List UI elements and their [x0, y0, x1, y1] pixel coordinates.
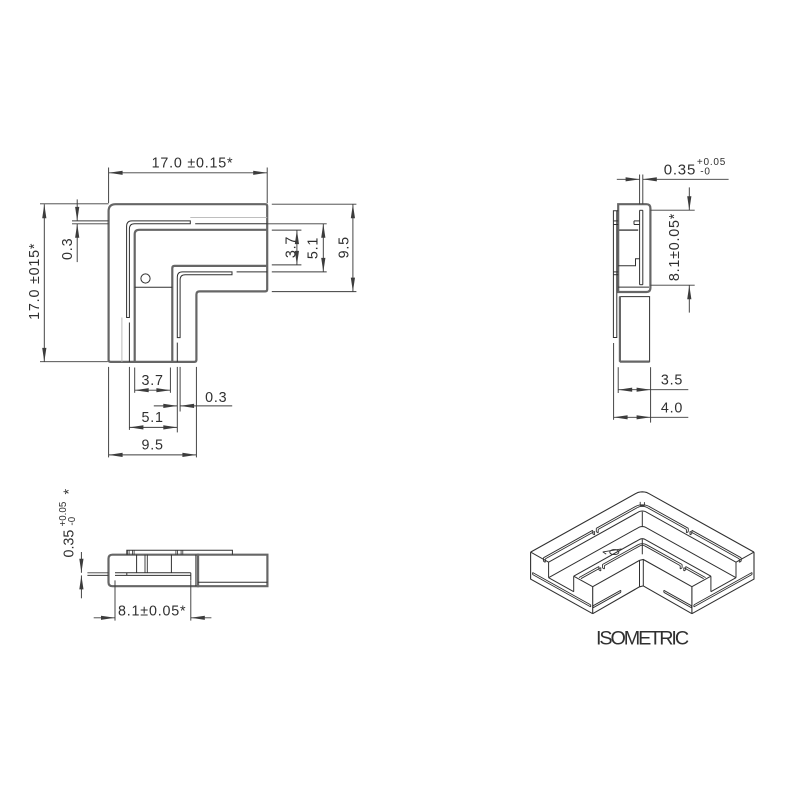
svg-text:*: *	[62, 489, 78, 495]
svg-text:8.1±0.05*: 8.1±0.05*	[118, 603, 186, 619]
svg-text:-0: -0	[67, 516, 78, 525]
svg-text:-0: -0	[700, 167, 711, 178]
svg-text:17.0 ±0.15*: 17.0 ±0.15*	[152, 155, 234, 171]
svg-text:8.1±0.05*: 8.1±0.05*	[667, 213, 683, 281]
svg-text:ISOMETRIC: ISOMETRIC	[596, 627, 689, 649]
svg-text:0.3: 0.3	[205, 390, 227, 406]
svg-text:0.35: 0.35	[664, 162, 696, 179]
svg-text:9.5: 9.5	[336, 236, 352, 258]
svg-text:9.5: 9.5	[141, 438, 163, 454]
svg-text:3.7: 3.7	[141, 373, 163, 389]
svg-text:4.0: 4.0	[661, 400, 683, 416]
svg-text:17.0 ±015*: 17.0 ±015*	[27, 243, 43, 320]
svg-text:3.7: 3.7	[284, 236, 300, 258]
svg-text:0.35: 0.35	[62, 530, 78, 558]
svg-text:0.3: 0.3	[60, 238, 76, 260]
svg-text:5.1: 5.1	[306, 237, 322, 259]
svg-text:5.1: 5.1	[141, 410, 163, 426]
svg-text:3.5: 3.5	[661, 373, 683, 389]
